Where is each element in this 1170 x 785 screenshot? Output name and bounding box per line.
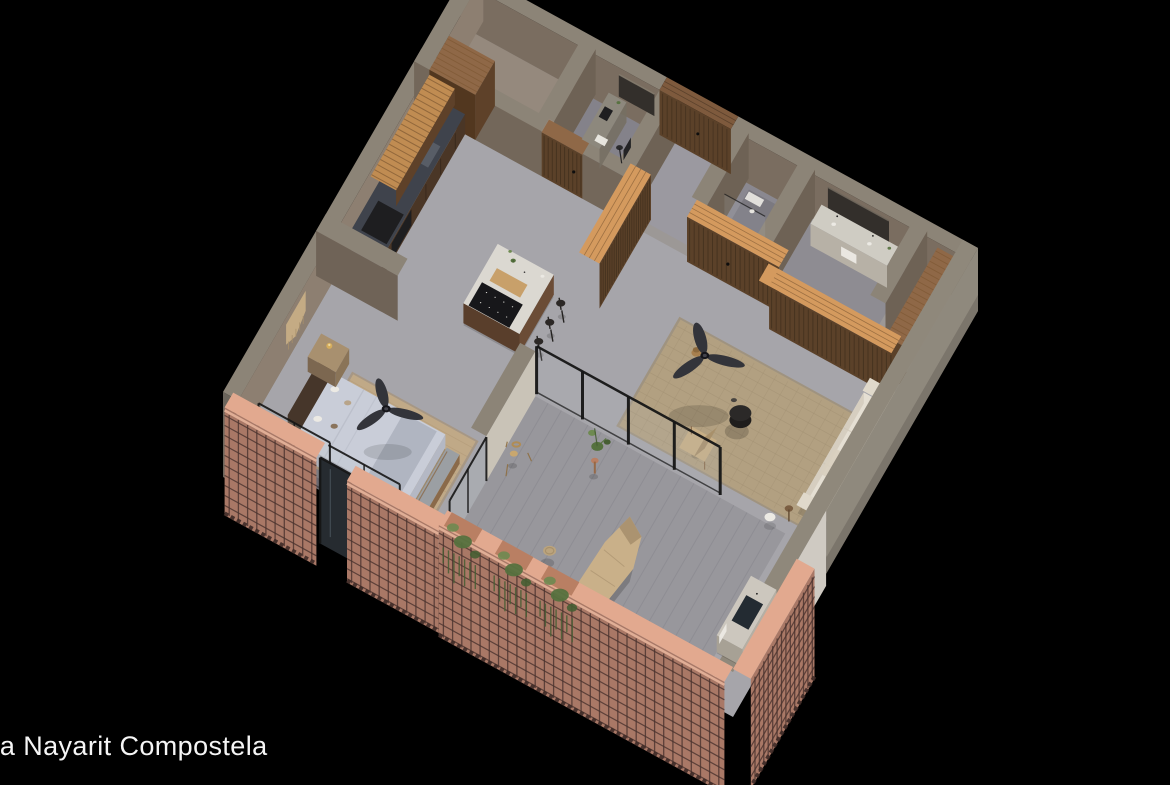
floorplan-3d-render [0, 0, 1170, 785]
floorplan-canvas: ta Nayarit Compostela [0, 0, 1170, 785]
caption-text: ta Nayarit Compostela [0, 731, 268, 762]
